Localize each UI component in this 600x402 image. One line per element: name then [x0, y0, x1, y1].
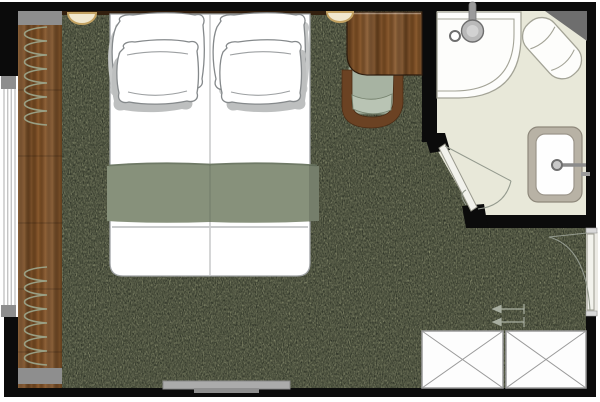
door-frame-top: [586, 228, 597, 233]
top-wall: [0, 2, 596, 11]
right-wall-upper: [586, 2, 596, 232]
vanity: [528, 127, 590, 202]
pillow-front-right: [220, 40, 302, 104]
double-bed: [107, 13, 319, 276]
wood-floor-border: [18, 11, 62, 390]
window-wall: [1, 76, 16, 317]
entry-door-leaf: [587, 234, 594, 310]
left-wall-lower: [4, 317, 18, 397]
floor-plan-drawing: [0, 0, 600, 402]
bathroom-partition-wall: [422, 2, 437, 142]
right-wall-lower: [586, 316, 596, 397]
bathroom-bottom-wall: [478, 215, 596, 228]
door-frame-bottom: [586, 311, 597, 316]
tv-mount: [194, 388, 259, 393]
floor-plan: [0, 0, 600, 402]
window-frame-cap-bottom: [1, 305, 16, 317]
bottom-wall: [18, 388, 596, 397]
faucet: [552, 160, 562, 170]
tv-screen: [163, 381, 290, 389]
window-glazing: [1, 76, 16, 307]
column-block-bottom: [18, 368, 62, 384]
shower-control: [450, 31, 460, 41]
window-frame-cap-top: [1, 76, 16, 89]
pillow-front-left: [117, 40, 199, 104]
faucet-valve: [581, 172, 590, 176]
column-block-top: [18, 11, 62, 25]
desk: [347, 12, 422, 75]
bed-runner: [107, 163, 319, 223]
left-wall-upper: [0, 2, 18, 76]
